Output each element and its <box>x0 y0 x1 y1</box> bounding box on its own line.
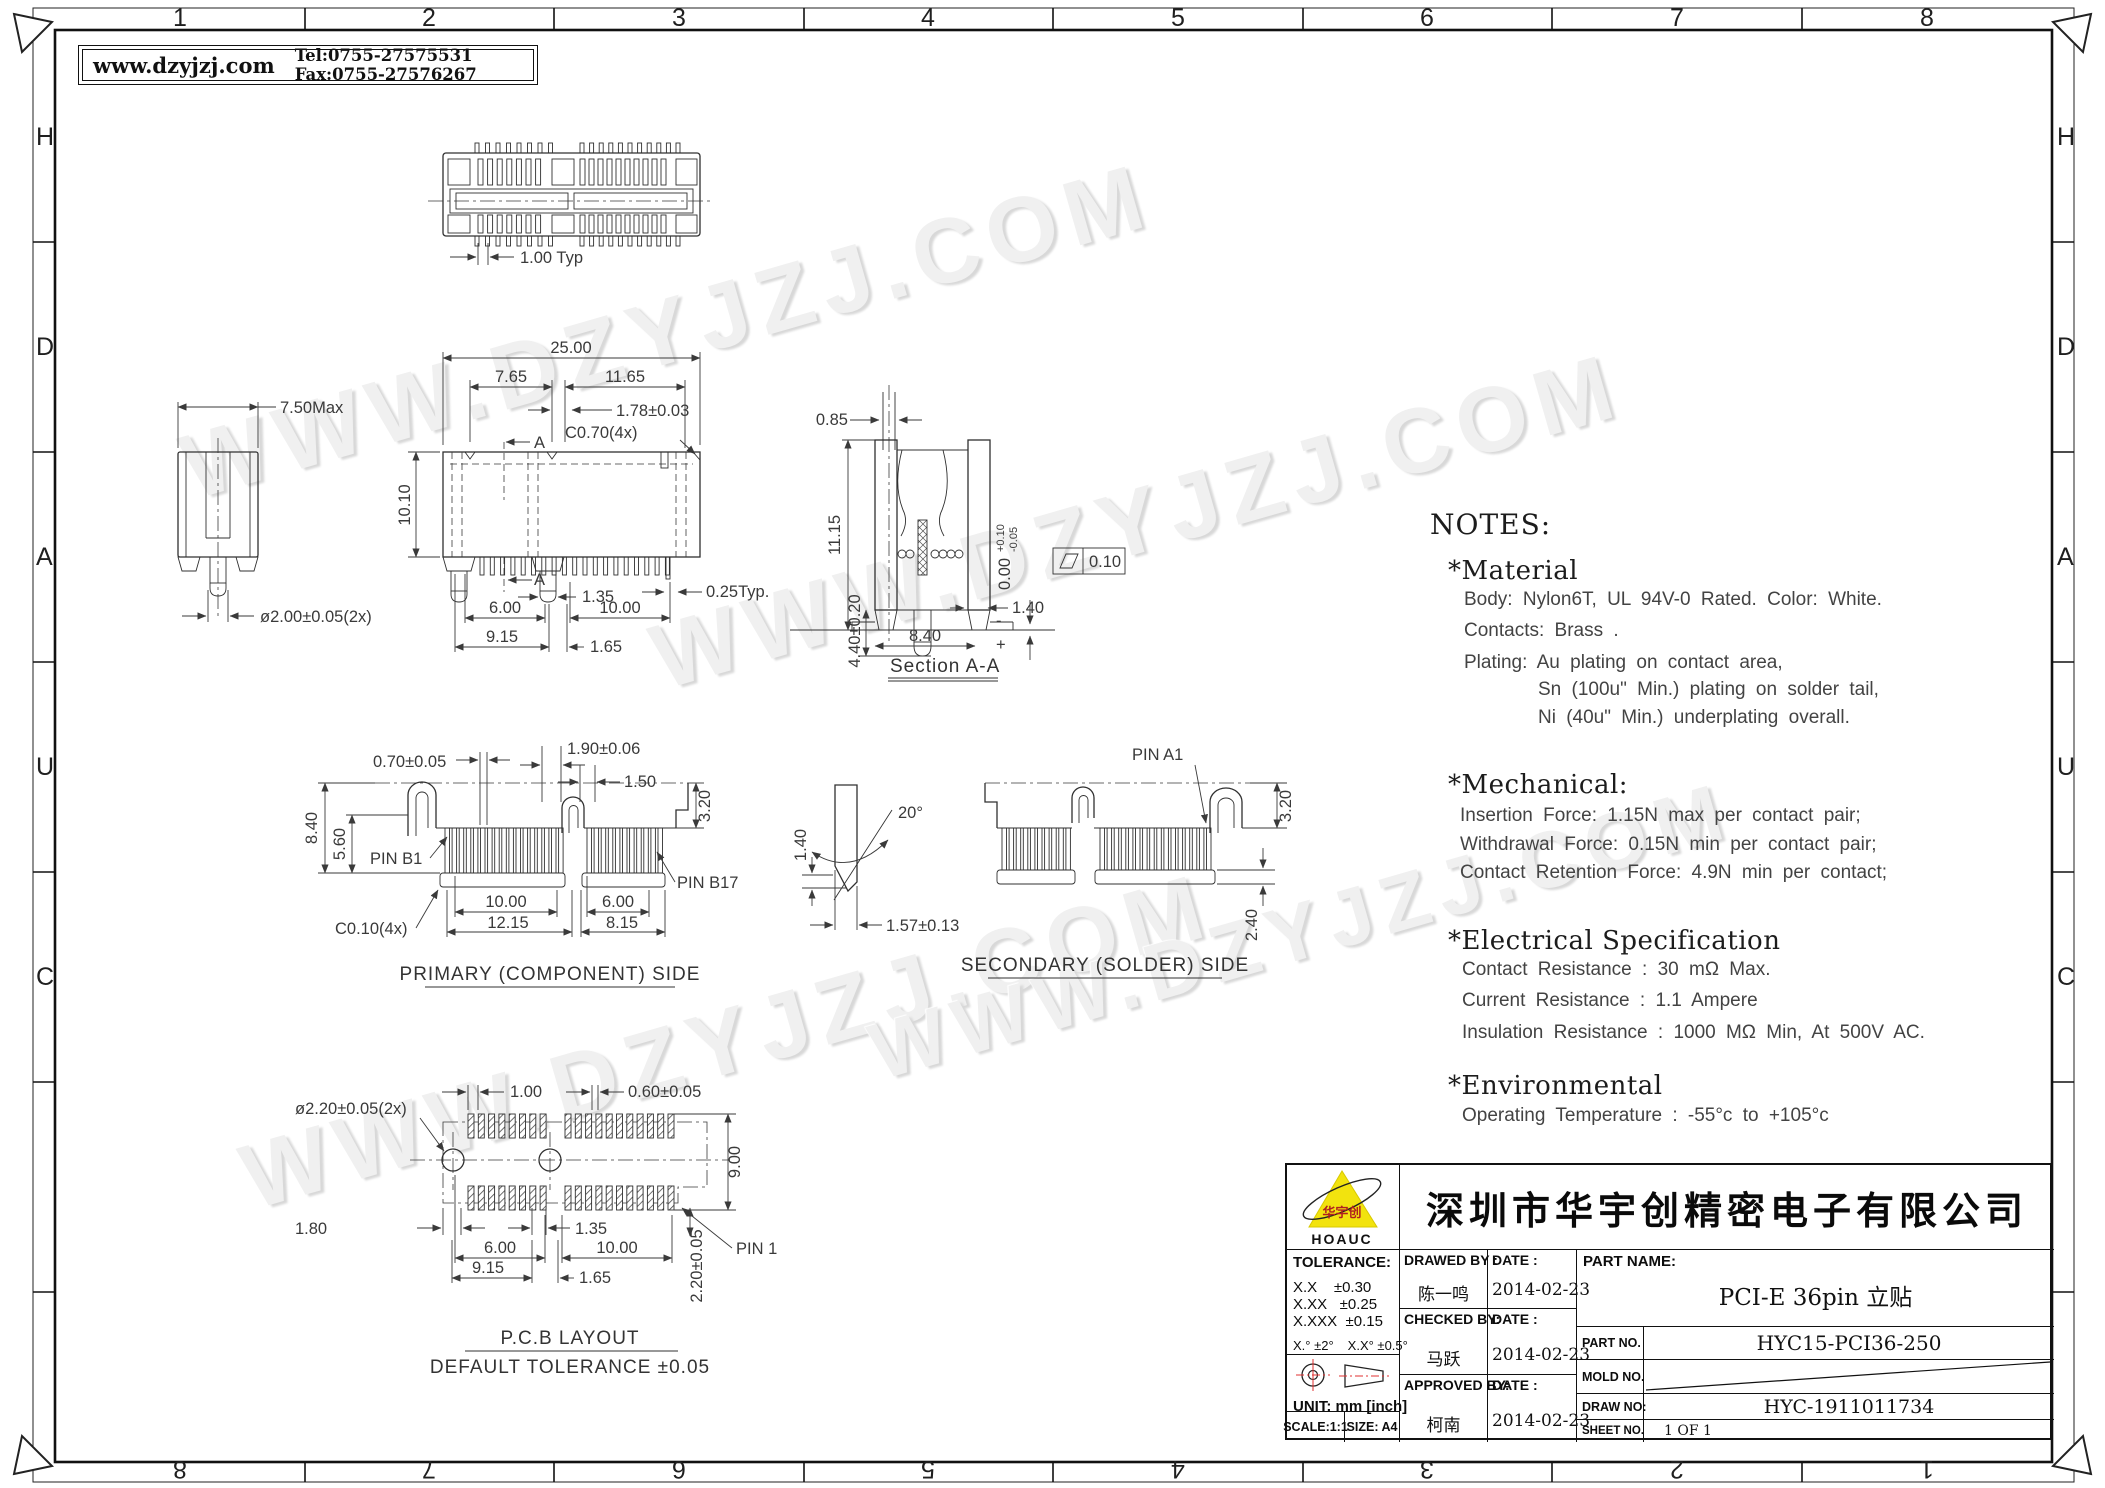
approved-by-name: 柯南 <box>1404 1411 1483 1436</box>
border-number: 7 <box>422 1454 436 1483</box>
dim-tail: 2.40 <box>1243 909 1261 941</box>
note-line: Operating Temperature : -55°c to +105°c <box>1462 1105 1829 1127</box>
border-letter: C <box>36 963 54 992</box>
dim-body-width: 7.50Max <box>280 399 344 417</box>
pin-1-label: PIN 1 <box>736 1240 777 1258</box>
part-name-cell: PART NAME: PCI-E 36pin 立贴 <box>1577 1250 2054 1327</box>
border-letter: C <box>2057 963 2075 992</box>
border-number: 2 <box>1670 1454 1684 1483</box>
draw-no-label: DRAW NO: <box>1582 1400 1647 1414</box>
dim-height: 8.40 <box>303 812 321 844</box>
dim-tail: 4.40±0.20 <box>846 594 864 667</box>
dim-peg-dia: ø2.00±0.05(2x) <box>260 608 372 626</box>
dim-span3: 9.15 <box>472 1259 504 1277</box>
border-letter: A <box>2057 543 2074 572</box>
part-name-label: PART NAME: <box>1583 1253 2048 1270</box>
tolerance-row: X.XX ±0.25 <box>1293 1296 1393 1313</box>
dim-span4: 1.65 <box>579 1269 611 1287</box>
dim-hole: ø2.20±0.05(2x) <box>295 1100 407 1118</box>
notes-title: NOTES: <box>1430 508 1551 541</box>
border-number: 7 <box>1670 4 1684 33</box>
company-logo: 华宇创 HOAUC <box>1287 1165 1397 1248</box>
header-contact-box: www.dzyjzj.com Tel:0755-27575531 Fax:075… <box>78 45 538 85</box>
logo-brand-cn: 华宇创 <box>1322 1205 1361 1220</box>
pcb-label: P.C.B LAYOUT <box>500 1328 639 1349</box>
dim-pad: 0.60±0.05 <box>628 1083 701 1101</box>
dim-span2: 10.00 <box>596 1239 637 1257</box>
border-letter: D <box>2057 333 2075 362</box>
note-line: Sn (100u" Min.) plating on solder tail, <box>1538 679 1879 701</box>
dim-pitch: 1.00 Typ <box>520 249 583 267</box>
dim-slot: 1.35 <box>575 1220 607 1238</box>
mold-no-label-cell: MOLD NO. <box>1577 1360 1644 1394</box>
tolerance-deg1: X.° ±2° <box>1293 1338 1334 1353</box>
dim-width: 1.57±0.13 <box>886 917 959 935</box>
mold-no-label: MOLD NO. <box>1582 1370 1645 1384</box>
dim-left: 7.65 <box>495 368 527 386</box>
border-number: 4 <box>921 4 935 33</box>
note-line: Insertion Force: 1.15N max per contact p… <box>1460 805 1861 827</box>
border-letter: U <box>2057 753 2075 782</box>
note-line: Current Resistance : 1.1 Ampere <box>1462 990 1758 1012</box>
tolerance-row: X.X ±0.30 <box>1293 1279 1393 1296</box>
draw-no-label-cell: DRAW NO: <box>1577 1394 1644 1420</box>
checked-date: 2014-02-23 <box>1492 1345 1572 1365</box>
dim-edge: 1.80 <box>295 1220 327 1238</box>
dim-rows: 9.00 <box>726 1146 744 1178</box>
dim-tip: 1.40 <box>792 829 810 861</box>
pin-b17-label: PIN B17 <box>677 874 738 892</box>
electrical-heading: *Electrical Specification <box>1448 926 1780 956</box>
draw-no-value: HYC-1911011734 <box>1764 1396 1935 1418</box>
size-cell: SIZE: A4 <box>1345 1412 1400 1442</box>
tolerance-cell: TOLERANCE: X.X ±0.30 X.XX ±0.25 X.XXX ±0… <box>1287 1250 1400 1355</box>
note-line: Ni (40u" Min.) underplating overall. <box>1538 707 1850 729</box>
projection-cell: UNIT: mm [inch] <box>1287 1355 1400 1412</box>
primary-side-view: 0.70±0.05 1.90±0.06 1.50 3.20 8.40 5.60 … <box>240 740 760 1010</box>
dim-key: 1.90±0.06 <box>567 740 640 758</box>
dim-chamfer: C0.10(4x) <box>335 920 407 938</box>
note-line: Plating: Au plating on contact area, <box>1464 652 1783 674</box>
dim-total: 25.00 <box>550 339 591 357</box>
drawed-date-cell: DATE : 2014-02-23 <box>1488 1250 1577 1309</box>
projection-symbols-icon <box>1287 1357 1397 1393</box>
dim-pad: 0.70±0.05 <box>373 753 446 771</box>
note-line: Contact Retention Force: 4.9N min per co… <box>1460 862 1887 884</box>
secondary-label: SECONDARY (SOLDER) SIDE <box>961 955 1249 976</box>
flatness-icon <box>1060 554 1078 568</box>
checked-by-label: CHECKED BY: <box>1404 1311 1483 1327</box>
note-line: Contact Resistance : 30 mΩ Max. <box>1462 959 1770 981</box>
dim-angle: 20° <box>898 804 923 822</box>
scale-value: SCALE:1:1 <box>1283 1420 1348 1434</box>
date-label: DATE : <box>1492 1311 1572 1327</box>
mold-no-value-cell <box>1644 1360 2054 1394</box>
minus-mark: - <box>996 612 1002 630</box>
dim-coplanarity: 0.00 <box>996 558 1014 590</box>
note-line: Body: Nylon6T, UL 94V-0 Rated. Color: Wh… <box>1464 589 1882 611</box>
environmental-heading: *Environmental <box>1448 1071 1663 1101</box>
dim-span2: 6.00 <box>602 893 634 911</box>
border-number: 2 <box>422 4 436 33</box>
secondary-side-view: PIN A1 3.20 2.40 SECONDARY (SOLDER) SIDE <box>955 720 1375 1000</box>
dim-tol-minus: -0.05 <box>1008 527 1020 552</box>
sheet-no-label: SHEET NO. <box>1582 1425 1644 1437</box>
draw-no-value-cell: HYC-1911011734 <box>1644 1394 2054 1420</box>
border-number: 5 <box>1171 4 1185 33</box>
section-view: 0.85 11.15 4.40 <box>790 300 1130 700</box>
approved-date-cell: DATE : 2014-02-23 <box>1488 1375 1577 1442</box>
dim-hole-span: 9.15 <box>486 628 518 646</box>
border-letter: D <box>36 333 54 362</box>
dim-chamfer: C0.70(4x) <box>565 424 637 442</box>
date-label: DATE : <box>1492 1377 1572 1393</box>
logo-cell: 华宇创 HOAUC <box>1287 1165 1400 1250</box>
dim-span1: 10.00 <box>485 893 526 911</box>
border-number: 1 <box>1920 1454 1934 1483</box>
tolerance-row: X.XXX ±0.15 <box>1293 1313 1393 1330</box>
approved-by-label: APPROVED BY: <box>1404 1377 1483 1393</box>
sheet-no-label-cell: SHEET NO. <box>1577 1420 1644 1442</box>
logo-brand-en: HOAUC <box>1311 1231 1372 1247</box>
dim-tab: 3.20 <box>696 790 714 822</box>
dim-height: 11.15 <box>826 515 844 555</box>
pcb-layout-view: 1.00 0.60±0.05 ø2.20±0.05(2x) 9.00 1.80 … <box>270 1050 790 1380</box>
border-letter: U <box>36 753 54 782</box>
drawed-by-label: DRAWED BY : <box>1404 1252 1483 1268</box>
border-number: 3 <box>672 4 686 33</box>
dim-slot-gap: 0.85 <box>816 411 848 429</box>
mechanical-heading: *Mechanical: <box>1448 770 1628 800</box>
border-number: 8 <box>173 1454 187 1483</box>
dim-width: 8.40 <box>909 627 941 645</box>
dim-peg-span: 6.00 <box>489 599 521 617</box>
title-block: 华宇创 HOAUC 深圳市华宇创精密电子有限公司 TOLERANCE: X.X … <box>1285 1163 2052 1440</box>
approved-date: 2014-02-23 <box>1492 1411 1572 1431</box>
approved-by-cell: APPROVED BY: 柯南 <box>1400 1375 1488 1442</box>
website-text: www.dzyjzj.com <box>93 53 275 78</box>
dim-span1: 6.00 <box>484 1239 516 1257</box>
border-letter: H <box>36 123 54 152</box>
primary-label: PRIMARY (COMPONENT) SIDE <box>400 964 701 985</box>
note-line: Insulation Resistance : 1000 MΩ Min, At … <box>1462 1022 1925 1044</box>
section-letter: A <box>534 571 545 589</box>
phone-fax-text: Tel:0755-27575531 Fax:0755-27576267 <box>295 46 537 84</box>
border-letter: A <box>36 543 53 572</box>
company-name: 深圳市华宇创精密电子有限公司 <box>1400 1165 2054 1250</box>
tolerance-title: TOLERANCE: <box>1293 1254 1393 1271</box>
plus-mark: + <box>996 636 1006 654</box>
drawed-by-cell: DRAWED BY : 陈一鸣 <box>1400 1250 1488 1309</box>
dim-height: 10.10 <box>396 484 414 525</box>
material-heading: *Material <box>1448 556 1578 586</box>
sheet-no-value: 1 OF 1 <box>1664 1423 1712 1439</box>
section-label: Section A-A <box>890 656 1000 677</box>
dim-slot: 1.78±0.03 <box>616 402 689 420</box>
drawed-by-name: 陈一鸣 <box>1404 1280 1483 1305</box>
checked-date-cell: DATE : 2014-02-23 <box>1488 1309 1577 1375</box>
part-name-value: PCI-E 36pin 立贴 <box>1583 1278 2048 1312</box>
border-number: 6 <box>1420 4 1434 33</box>
border-number: 4 <box>1171 1454 1185 1483</box>
dim-offset: 1.65 <box>590 638 622 656</box>
pin-a1-label: PIN A1 <box>1132 746 1183 764</box>
dim-span4: 8.15 <box>606 914 638 932</box>
note-line: Withdrawal Force: 0.15N min per contact … <box>1460 834 1877 856</box>
border-number: 3 <box>1420 1454 1434 1483</box>
border-number: 5 <box>921 1454 935 1483</box>
section-letter: A <box>534 434 545 452</box>
scale-cell: SCALE:1:1 <box>1287 1412 1345 1442</box>
drawing-sheet: WWW.DZYJZJ.COM WWW.DZYJZJ.COM WWW.DZYJZJ… <box>0 0 2105 1488</box>
dim-tab: 3.20 <box>1277 790 1295 822</box>
dim-flatness: 0.10 <box>1089 553 1121 571</box>
pcb-tolerance-label: DEFAULT TOLERANCE ±0.05 <box>430 1357 710 1378</box>
part-no-value-cell: HYC15-PCI36-250 <box>1644 1327 2054 1360</box>
part-no-value: HYC15-PCI36-250 <box>1757 1331 1942 1355</box>
border-letter: H <box>2057 123 2075 152</box>
dim-pin-span: 10.00 <box>599 599 640 617</box>
dim-foot: 1.40 <box>1012 599 1044 617</box>
dim-right: 11.65 <box>605 368 645 386</box>
pin-b1-label: PIN B1 <box>370 850 422 868</box>
dim-span3: 12.15 <box>487 914 528 932</box>
top-view: 1.00 Typ <box>380 95 780 295</box>
tolerance-deg2: X.X° ±0.5° <box>1348 1338 1408 1353</box>
checked-by-name: 马跃 <box>1404 1345 1483 1370</box>
sheet-no-value-cell: 1 OF 1 <box>1644 1420 2054 1442</box>
dim-pad-len: 2.20±0.05 <box>688 1229 706 1302</box>
drawed-date: 2014-02-23 <box>1492 1280 1572 1300</box>
part-no-label-cell: PART NO. <box>1577 1327 1644 1360</box>
part-no-label: PART NO. <box>1582 1336 1641 1350</box>
dim-pitch: 1.00 <box>510 1083 542 1101</box>
front-view: 25.00 7.65 11.65 1.78±0.03 C0.70(4x) A 1… <box>380 330 825 670</box>
border-number: 6 <box>672 1454 686 1483</box>
border-number: 1 <box>173 4 187 33</box>
mold-no-diagonal <box>1644 1360 2052 1392</box>
dim-tol-plus: +0.10 <box>995 524 1007 552</box>
dim-body: 5.60 <box>331 828 349 860</box>
checked-by-cell: CHECKED BY: 马跃 <box>1400 1309 1488 1375</box>
size-value: SIZE: A4 <box>1347 1420 1398 1434</box>
note-line: Contacts: Brass . <box>1464 620 1619 642</box>
border-number: 8 <box>1920 4 1934 33</box>
date-label: DATE : <box>1492 1252 1572 1268</box>
dim-pin-width: 0.25Typ. <box>706 583 769 601</box>
dim-key2: 1.50 <box>624 773 656 791</box>
